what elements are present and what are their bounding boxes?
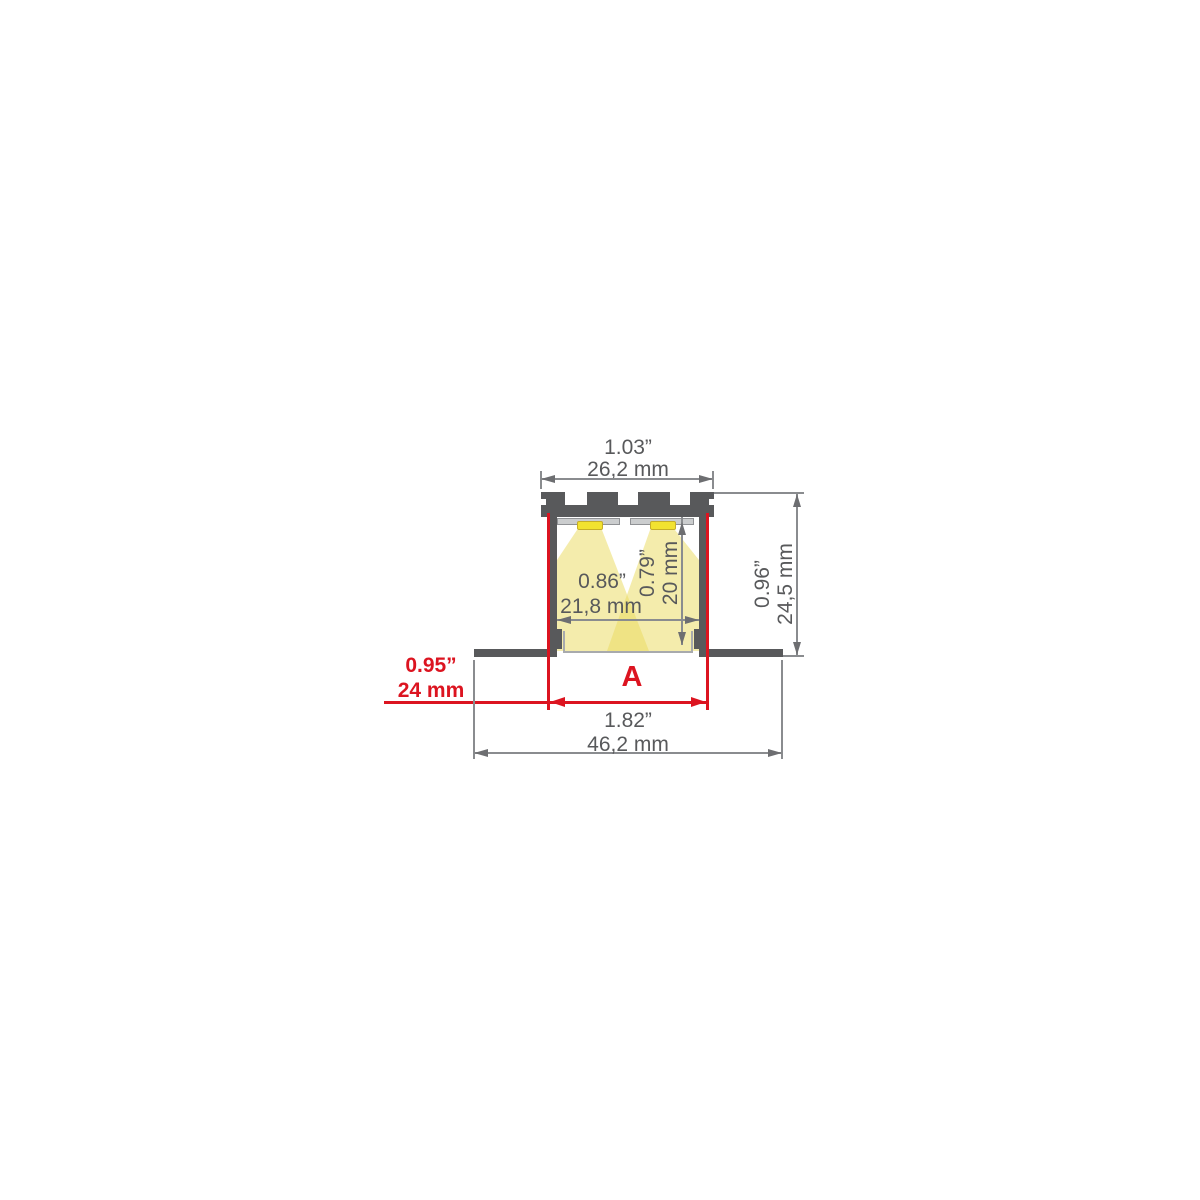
cutout-inch-label: 0.95” [331, 654, 531, 678]
top-dim-arrow-right [699, 475, 713, 483]
cutout-letter-label: A [582, 665, 682, 689]
top-width-inch-label: 1.03” [528, 436, 728, 460]
overall-height-inch-label: 0.96” [751, 519, 775, 649]
fin-gap-2 [618, 492, 638, 505]
diffuser-left-edge [563, 631, 565, 651]
inner-height-arrow-bottom [678, 632, 686, 645]
mount-notch-right [709, 499, 714, 505]
cutout-arrow-right [691, 697, 706, 707]
inner-height-dim-line [681, 517, 683, 645]
overall-width-inch-label: 1.82” [528, 709, 728, 733]
height-arrow-top [793, 494, 801, 507]
height-ext-bottom [783, 655, 804, 657]
diffuser-lip-right [694, 629, 699, 649]
top-dim-arrow-left [541, 475, 555, 483]
height-ext-top [714, 492, 804, 494]
overall-width-ext-left [473, 660, 475, 759]
overall-height-mm-label: 24,5 mm [774, 519, 798, 649]
diffuser-bottom [563, 651, 693, 653]
inner-height-inch-label: 0.79” [636, 508, 660, 638]
mount-notch-left [541, 499, 546, 505]
cutout-arrow-left [550, 697, 565, 707]
diffuser-right-edge [691, 631, 693, 651]
profile-right-flange [707, 649, 783, 657]
inner-width-arrow-left [557, 616, 571, 624]
cutout-mm-label: 24 mm [331, 679, 531, 703]
diagram-canvas: 1.03” 26,2 mm 0.86” 21,8 mm 0.79” 20 mm … [0, 0, 1200, 1200]
inner-width-arrow-right [685, 616, 699, 624]
fin-gap-3 [670, 492, 690, 505]
inner-height-arrow-top [678, 522, 686, 535]
fin-gap-1 [565, 492, 587, 505]
led-emitter-left [577, 521, 603, 530]
cutout-marker-right [706, 513, 709, 710]
profile-top-section [541, 492, 714, 517]
top-dim-line [541, 478, 713, 480]
overall-width-arrow-left [474, 749, 488, 757]
cutout-marker-left [547, 513, 550, 710]
overall-width-arrow-right [768, 749, 782, 757]
overall-width-ext-right [781, 660, 783, 759]
diffuser-lip-left [557, 629, 562, 649]
overall-width-mm-label: 46,2 mm [528, 733, 728, 757]
